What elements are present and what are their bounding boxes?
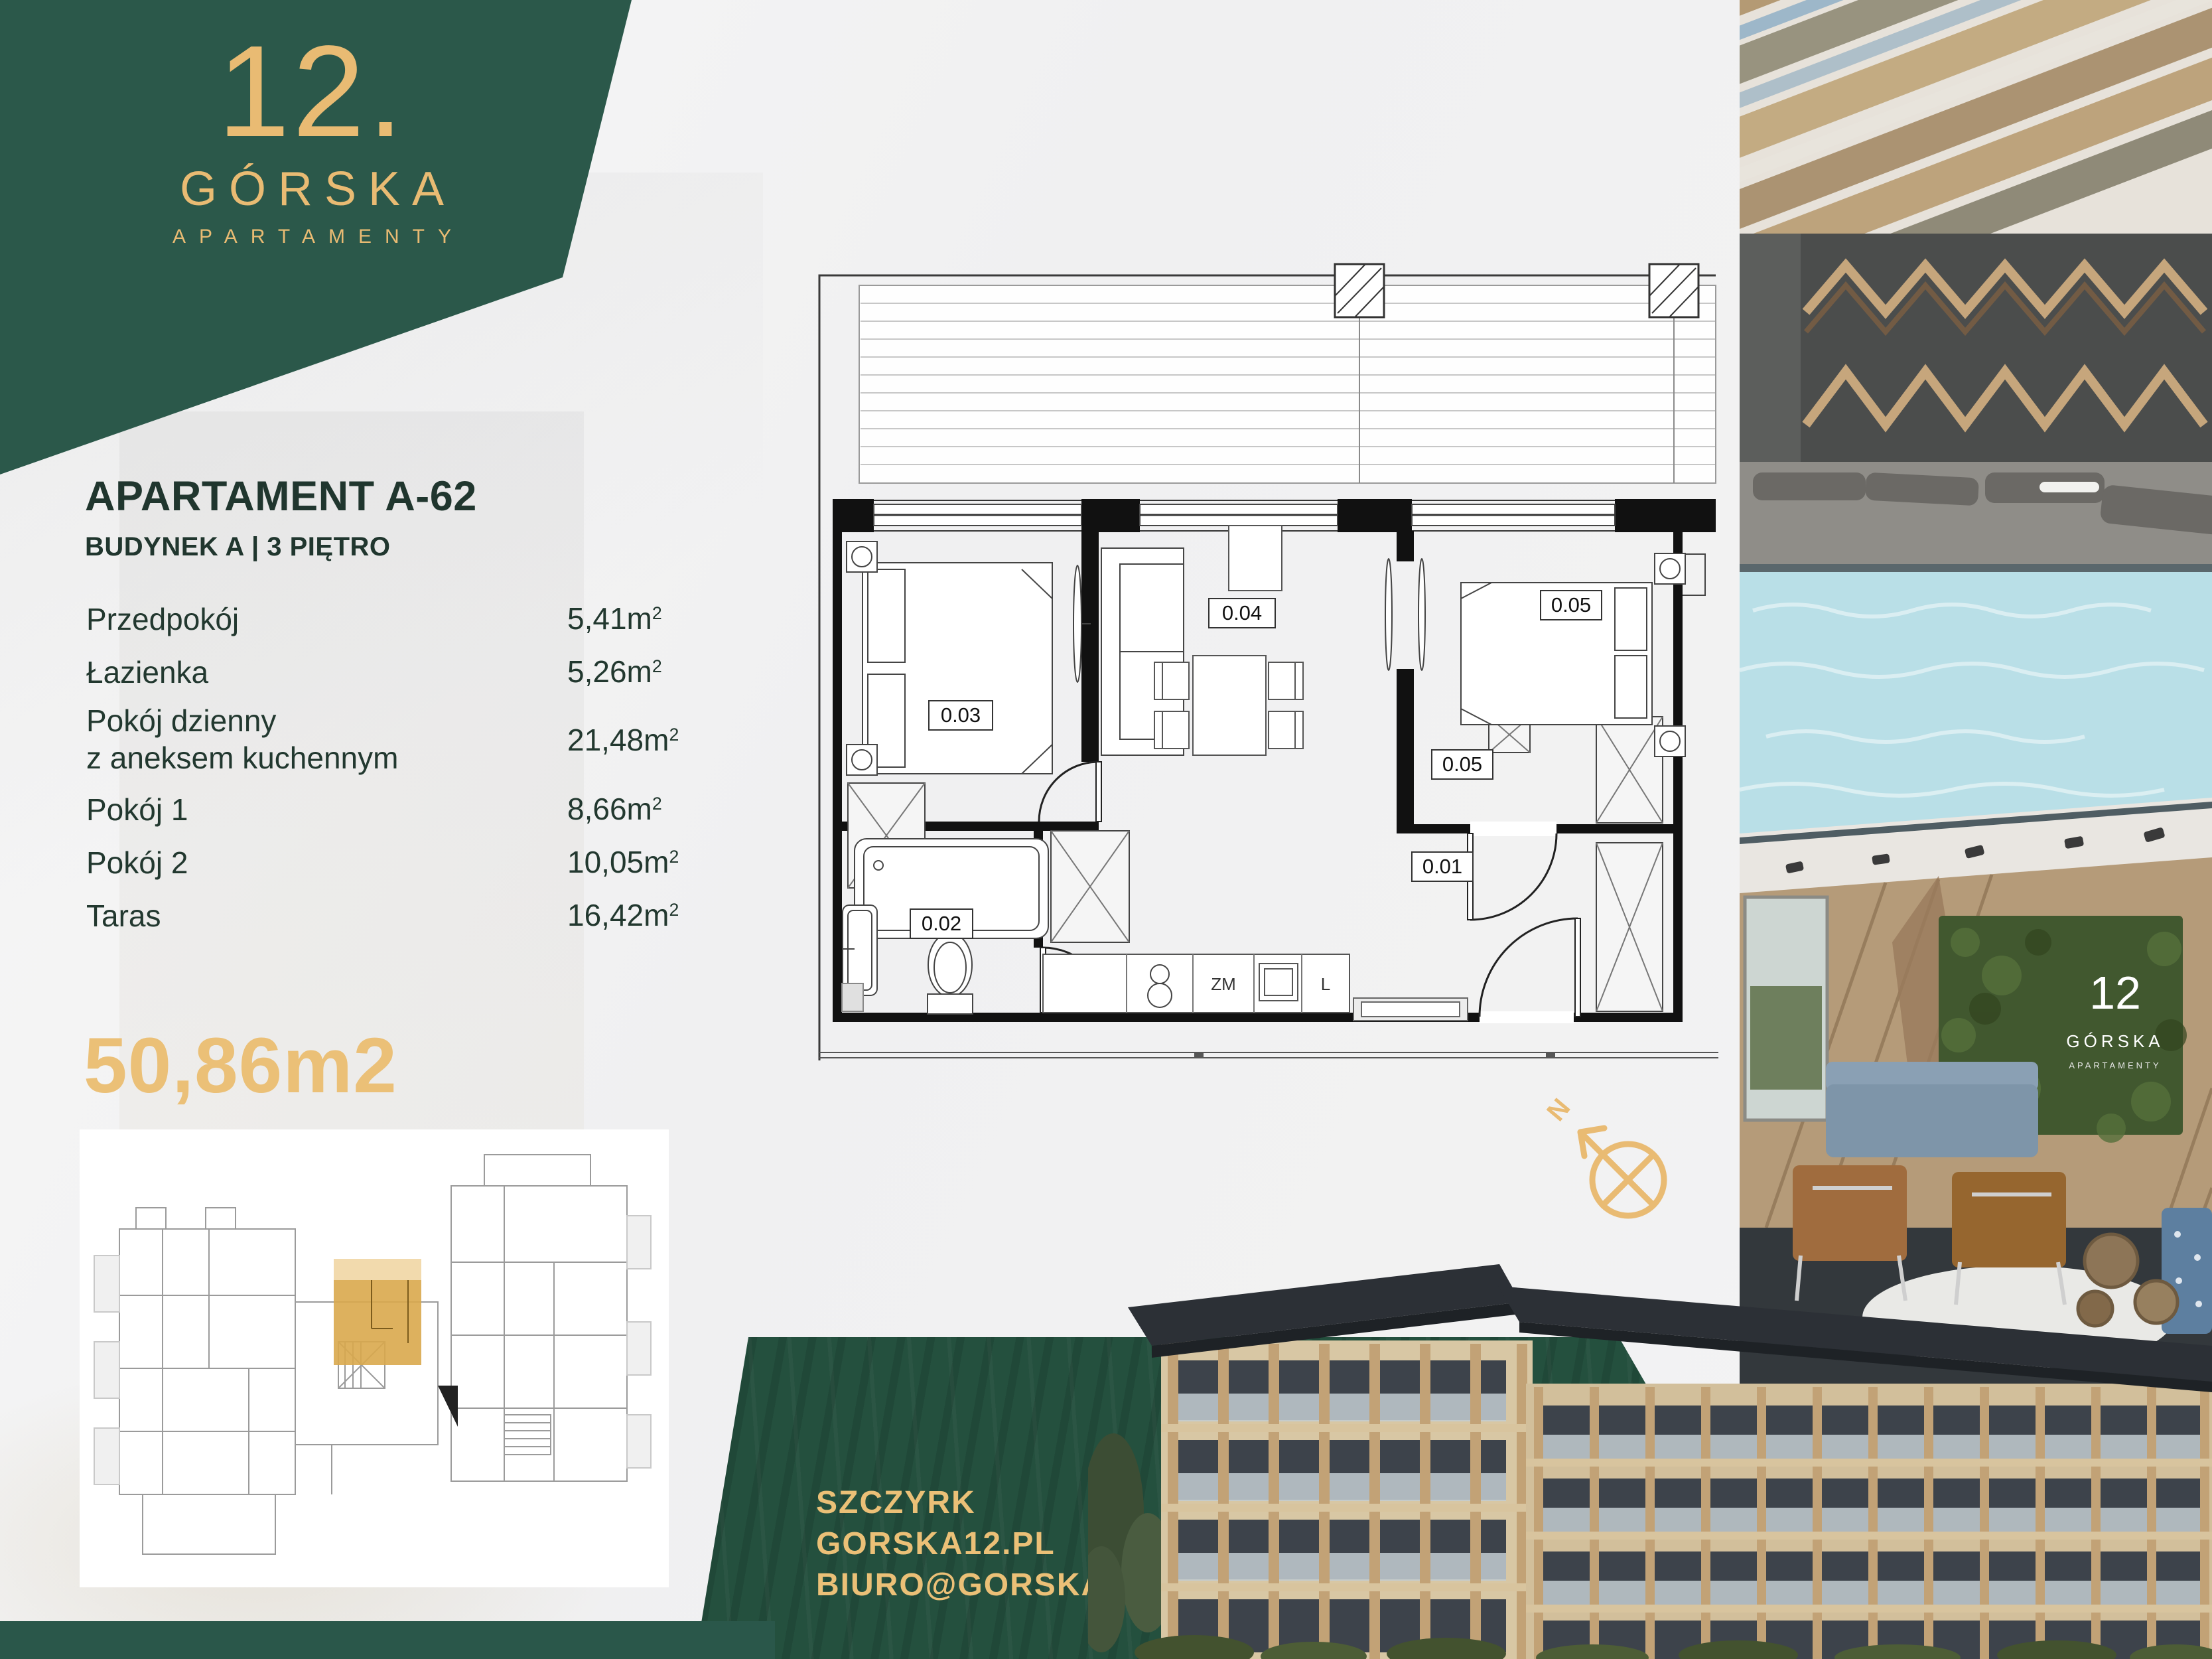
kitchen-label-l: L	[1321, 974, 1330, 994]
compass-north-label: N	[1546, 1093, 1576, 1126]
pool-and-lobby-photos: 12 GÓRSKA APARTAMENTY	[1740, 0, 2212, 1387]
lobby-logo-name: GÓRSKA	[2066, 1031, 2164, 1051]
room-row-label: Pokój dziennyz aneksem kuchennym	[86, 702, 398, 776]
room-label-03: 0.03	[941, 703, 981, 727]
compass-icon: N	[1546, 1088, 1705, 1248]
kitchen-label-zm: ZM	[1211, 974, 1236, 994]
building-left-block	[1128, 1264, 1533, 1659]
door-openings	[1470, 822, 1574, 1023]
contact-website[interactable]: GORSKA12.PL	[816, 1526, 1056, 1562]
bed-room03	[847, 541, 1052, 775]
room-label-04: 0.04	[1222, 601, 1262, 624]
room-label-05b: 0.05	[1442, 753, 1482, 776]
room-label-02: 0.02	[922, 912, 961, 935]
lobby-logo-number: 12	[2089, 967, 2141, 1019]
total-area: 50,86m2	[84, 1021, 397, 1111]
room-label-05a: 0.05	[1551, 593, 1591, 616]
room-row-label: Taras	[86, 897, 161, 934]
terrace	[859, 264, 1716, 483]
building-photo	[1088, 1228, 2212, 1659]
room-row-value: 8,66m2	[567, 791, 662, 827]
room-row-label: Przedpokój	[86, 601, 239, 638]
brochure-page: 12. GÓRSKA APARTAMENTY APARTAMENT A-62 B…	[0, 0, 2212, 1659]
brand-number: 12.	[126, 27, 498, 157]
bottom-green-strip	[0, 1621, 775, 1659]
lobby-logo-tagline: APARTAMENTY	[2069, 1060, 2161, 1070]
room-row-value: 16,42m2	[567, 897, 679, 933]
room-row-label: Pokój 2	[86, 844, 188, 881]
corridor	[819, 1052, 1718, 1058]
brand-logo: 12. GÓRSKA APARTAMENTY	[126, 27, 498, 248]
apartment-subtitle: BUDYNEK A | 3 PIĘTRO	[85, 532, 391, 562]
room-row-value: 5,26m2	[567, 654, 662, 689]
apartment-floorplan: ZM L	[796, 252, 1725, 1082]
pool-photo	[1740, 0, 2212, 835]
contact-city: SZCZYRK	[816, 1484, 976, 1521]
brand-tagline: APARTAMENTY	[126, 226, 498, 248]
entry-mat	[1353, 998, 1468, 1021]
building-right-wing	[1498, 1286, 2212, 1659]
coffee-table	[1229, 526, 1282, 591]
room-row-value: 5,41m2	[567, 601, 662, 636]
room-row-value: 21,48m2	[567, 722, 679, 758]
wall-notch	[1683, 554, 1705, 595]
room-row-label: Pokój 1	[86, 791, 188, 828]
floor-overview-plan	[80, 1129, 669, 1587]
highlighted-unit	[334, 1259, 421, 1365]
kitchen: ZM L	[1043, 954, 1349, 1013]
room-row-value: 10,05m2	[567, 844, 679, 880]
brand-name: GÓRSKA	[126, 162, 498, 216]
apartment-title: APARTAMENT A-62	[85, 472, 477, 520]
room-label-01: 0.01	[1422, 855, 1462, 878]
room-row-label: Łazienka	[86, 654, 208, 691]
